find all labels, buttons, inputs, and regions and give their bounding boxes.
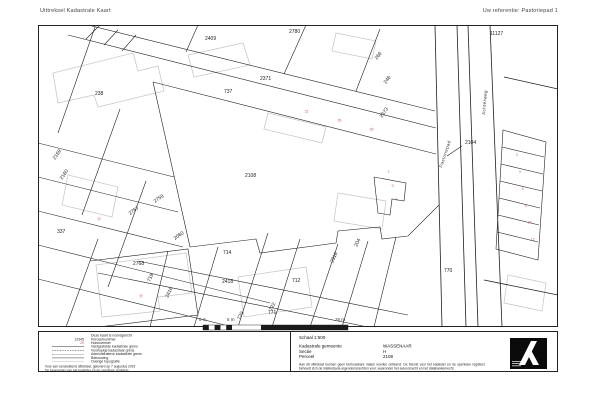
parcel-number: 246: [383, 75, 393, 85]
parcel-number: 2916: [329, 251, 339, 264]
house-number: 6: [521, 187, 524, 191]
parcel-number: 2060: [173, 230, 186, 241]
parcel-number: 204: [353, 238, 362, 248]
building-outlines: [53, 33, 546, 317]
legend-rows: Deze kaart is noordgericht12345Perceelnu…: [45, 334, 290, 364]
parcel-number: 2371: [260, 76, 271, 82]
map-labels: 2409278023717372381112721042108276871424…: [52, 29, 535, 321]
house-number: 1: [387, 170, 390, 174]
scale-segment: [226, 325, 232, 330]
kadaster-logo: [510, 338, 547, 369]
legend-label: Overige topografie: [91, 360, 120, 364]
scale-label: 5 m: [227, 317, 235, 322]
legend-box: Deze kaart is noordgericht12345Perceelnu…: [39, 332, 291, 371]
parcel-number: 2104: [465, 140, 476, 146]
house-number: 8: [524, 204, 527, 208]
kadaster-logo-mark: [510, 338, 547, 369]
map-canvas: 2409278023717372381112721042108276871424…: [38, 25, 558, 327]
house-number: 22: [304, 109, 309, 114]
info-value: WASSENAAR: [383, 344, 412, 349]
street-label: Achterweg: [481, 90, 488, 115]
parcel-number: 737: [224, 89, 233, 95]
scale-segment: [215, 325, 221, 330]
info-box: Schaal 1:500 Kadastrale gemeenteWASSENAA…: [291, 332, 557, 371]
parcel-number: 2108: [245, 173, 256, 179]
house-number: 4: [518, 170, 521, 174]
scale-segment: [203, 325, 209, 330]
legend-row: Overige topografie: [45, 360, 290, 364]
reference-text: Uw referentie: Pastoriepad 1: [483, 8, 558, 14]
house-number: 23: [138, 293, 144, 299]
parcel-number: 2373: [379, 106, 390, 119]
parcel-number: 266: [374, 51, 384, 61]
house-number: 2: [515, 153, 518, 157]
house-number: 26: [337, 118, 342, 123]
parcel-number: 2418: [222, 279, 233, 285]
parcel-number: 238: [95, 91, 104, 97]
house-number: 28: [369, 127, 374, 132]
parcel-number: 2759: [153, 193, 166, 204]
house-number: 12: [530, 237, 535, 242]
house-number: 15: [96, 216, 102, 222]
parcel-number: 11127: [490, 31, 503, 37]
disclaimer-text: Aan dit uittreksel kunnen geen betrouwba…: [299, 363, 485, 371]
legend-symbol: [45, 360, 91, 364]
parcel-number: 770: [444, 268, 453, 274]
document-title: Uittreksel Kadastrale Kaart: [40, 8, 111, 14]
parcel-number: 712: [292, 278, 301, 284]
scale-label: 25 m: [335, 317, 345, 322]
scale-label: 0 m: [199, 317, 207, 322]
cadastral-extract-page: Uittreksel Kadastrale Kaart Uw referenti…: [0, 0, 600, 400]
scale-segment: [261, 325, 348, 330]
parcel-number: 2159: [52, 148, 63, 161]
house-number: 3: [391, 184, 394, 188]
info-value: 2108: [383, 354, 393, 359]
small-parcels-right: [496, 130, 546, 260]
parcel-number: 337: [57, 229, 66, 235]
parcel-number: 714: [223, 250, 232, 256]
bottom-band: Deze kaart is noordgericht12345Perceelnu…: [38, 331, 558, 372]
info-label: Perceel: [299, 354, 383, 359]
parcel-number: 2768: [133, 261, 144, 267]
parcel-number: 2409: [205, 36, 216, 42]
cadastral-map: 2409278023717372381112721042108276871424…: [38, 25, 558, 327]
house-number: 10: [527, 220, 532, 225]
parcel-number: 2780: [289, 29, 300, 35]
legend-footer-line2: De bewaarder van het kadaster en de open…: [45, 369, 290, 371]
